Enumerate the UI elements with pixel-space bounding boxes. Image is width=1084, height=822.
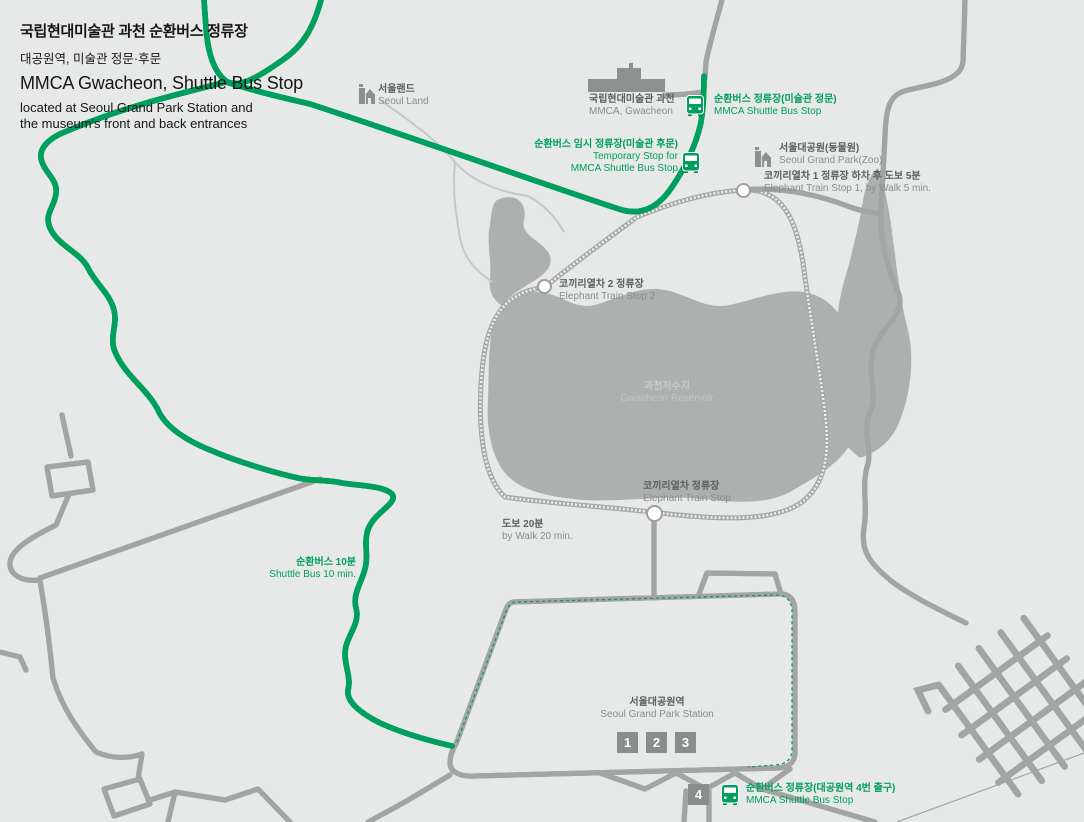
reservoir-label-ko: 과천저수지 xyxy=(620,381,713,393)
front-stop-label-en: MMCA Shuttle Bus Stop xyxy=(714,106,837,118)
page-title-korean: 국립현대미술관 과천 순환버스 정류장 xyxy=(20,20,303,41)
front-stop-label-ko: 순환버스 정류장(미술관 정문) xyxy=(714,94,837,106)
shuttle-bus-icon-temporary[interactable] xyxy=(682,152,700,173)
seoul-land-label-en: Seoul Land xyxy=(378,96,429,108)
map-header: 국립현대미술관 과천 순환버스 정류장 대공원역, 미술관 정문·후문 MMCA… xyxy=(20,20,303,132)
shuttle-bus-icon-front[interactable] xyxy=(686,95,704,116)
page-subtitle-korean: 대공원역, 미술관 정문·후문 xyxy=(20,48,303,67)
temporary-stop-label-en1: Temporary Stop for xyxy=(478,151,678,163)
train-stop1-note-ko: 코끼리열차 1 정류장 하차 후 도보 5분 xyxy=(764,171,931,183)
boundary-road xyxy=(897,753,1084,822)
page-description: located at Seoul Grand Park Station and … xyxy=(20,100,303,132)
station-exit-1[interactable]: 1 xyxy=(617,732,638,753)
description-line-1: located at Seoul Grand Park Station and xyxy=(20,100,303,116)
map-root: { "colors": { "green": "#00A05C", "backg… xyxy=(0,0,1084,822)
front-stop-label: 순환버스 정류장(미술관 정문) MMCA Shuttle Bus Stop xyxy=(714,94,837,118)
station-label: 서울대공원역 Seoul Grand Park Station xyxy=(600,697,713,721)
train-stop2-label-en: Elephant Train Stop 2 xyxy=(559,291,655,303)
reservoir-label-en: Gwacheon Reservoir xyxy=(620,393,713,405)
zoo-building-icon xyxy=(754,147,771,167)
shuttle-bus-icon-exit4[interactable] xyxy=(721,784,739,805)
mmca-label-en: MMCA, Gwacheon xyxy=(589,106,675,118)
walk20-note-ko: 도보 20분 xyxy=(502,519,573,531)
temporary-stop-label: 순환버스 임시 정류장(미술관 후문) Temporary Stop for M… xyxy=(478,139,678,175)
zoo-label-ko: 서울대공원(동물원) xyxy=(779,143,882,155)
exit4-stop-label-en: MMCA Shuttle Bus Stop xyxy=(746,795,895,807)
shuttle10-note-en: Shuttle Bus 10 min. xyxy=(156,569,356,581)
shuttle10-note-ko: 순환버스 10분 xyxy=(156,557,356,569)
elephant-train-stop-marker[interactable] xyxy=(646,505,663,522)
mmca-label-ko: 국립현대미술관 과천 xyxy=(589,94,675,106)
station-label-en: Seoul Grand Park Station xyxy=(600,709,713,721)
walk20-note: 도보 20분 by Walk 20 min. xyxy=(502,519,573,543)
reservoir-shape xyxy=(488,168,912,502)
exit4-stop-label: 순환버스 정류장(대공원역 4번 출구) MMCA Shuttle Bus St… xyxy=(746,783,895,807)
description-line-2: the museum's front and back entrances xyxy=(20,116,303,132)
shuttle10-note: 순환버스 10분 Shuttle Bus 10 min. xyxy=(156,557,356,581)
train-stop-main-label-ko: 코끼리열차 정류장 xyxy=(643,481,731,493)
zoo-label: 서울대공원(동물원) Seoul Grand Park(Zoo) xyxy=(779,143,882,167)
zoo-label-en: Seoul Grand Park(Zoo) xyxy=(779,155,882,167)
page-title-english: MMCA Gwacheon, Shuttle Bus Stop xyxy=(20,73,303,94)
train-stop1-note-en: Elephant Train Stop 1, by Walk 5 min. xyxy=(764,183,931,195)
mmca-label: 국립현대미술관 과천 MMCA, Gwacheon xyxy=(589,94,675,118)
train-stop-main-label-en: Elephant Train Stop xyxy=(643,493,731,505)
train-stop2-label: 코끼리열차 2 정류장 Elephant Train Stop 2 xyxy=(559,279,655,303)
seoul-land-label: 서울랜드 Seoul Land xyxy=(378,84,429,108)
seoul-land-building-icon xyxy=(358,84,375,104)
station-exit-3[interactable]: 3 xyxy=(675,732,696,753)
temporary-stop-label-en2: MMCA Shuttle Bus Stop xyxy=(478,163,678,175)
station-label-ko: 서울대공원역 xyxy=(600,697,713,709)
exit4-stop-label-ko: 순환버스 정류장(대공원역 4번 출구) xyxy=(746,783,895,795)
temporary-stop-label-ko: 순환버스 임시 정류장(미술관 후문) xyxy=(478,139,678,151)
seoul-land-label-ko: 서울랜드 xyxy=(378,84,429,96)
station-exit-4[interactable]: 4 xyxy=(688,784,709,805)
train-stop1-note: 코끼리열차 1 정류장 하차 후 도보 5분 Elephant Train St… xyxy=(764,171,931,195)
elephant-train-stop1-marker[interactable] xyxy=(736,183,751,198)
walk20-note-en: by Walk 20 min. xyxy=(502,531,573,543)
train-stop2-label-ko: 코끼리열차 2 정류장 xyxy=(559,279,655,291)
elephant-train-stop2-marker[interactable] xyxy=(537,279,552,294)
train-stop-main-label: 코끼리열차 정류장 Elephant Train Stop xyxy=(643,481,731,505)
mmca-building-icon xyxy=(588,62,666,92)
reservoir-label: 과천저수지 Gwacheon Reservoir xyxy=(620,381,713,405)
station-exit-2[interactable]: 2 xyxy=(646,732,667,753)
